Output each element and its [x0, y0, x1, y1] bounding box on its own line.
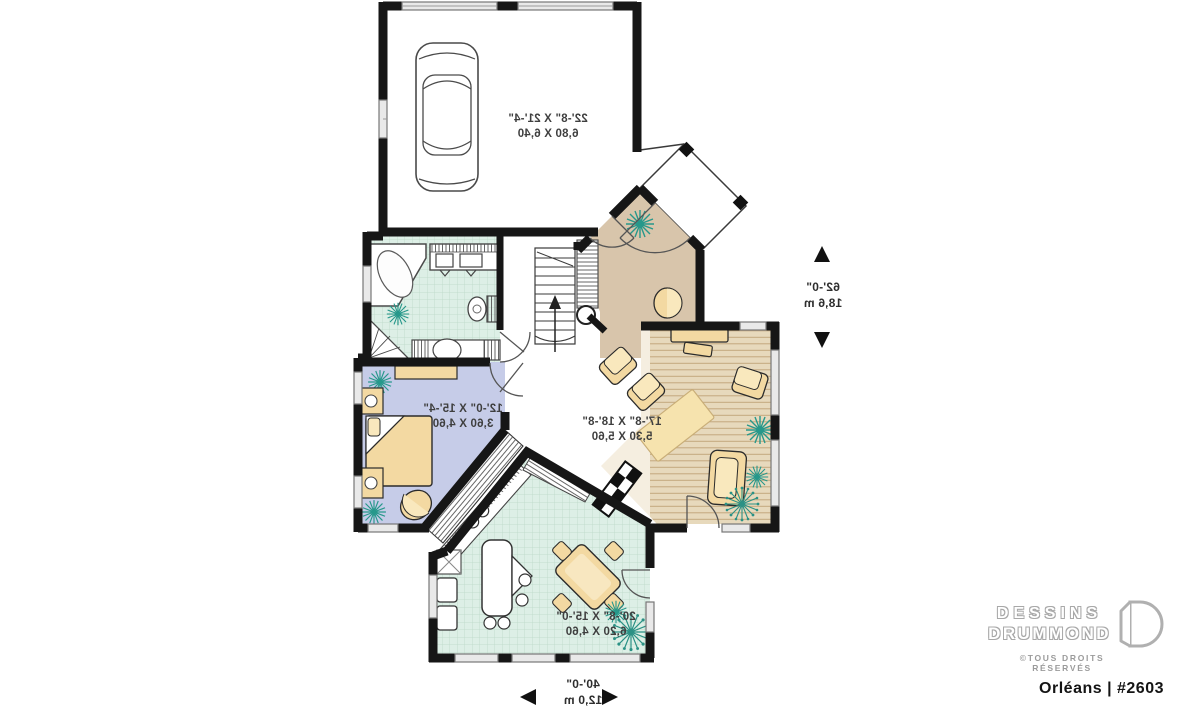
living-room-dimensions-label: 17'-8" X 18'-8" 5,30 X 5,60	[582, 415, 661, 445]
overall-width-label: 40'-0" 12,0 m	[564, 677, 603, 709]
bedroom-dim-imperial: 12'-0" X 15'-4"	[423, 402, 502, 417]
depth-imperial: 62'-0"	[804, 280, 843, 296]
brand-logo: DESSINS DRUMMOND ©TOUS DROITS RÉSERVÉS O…	[988, 597, 1164, 698]
plant-icon	[362, 500, 386, 524]
dining-table	[551, 540, 624, 613]
width-imperial: 40'-0"	[564, 677, 603, 693]
plan-model-number: Orléans | #2603	[988, 680, 1164, 698]
bedroom-dim-metric: 3,60 X 4,60	[423, 417, 502, 432]
kitchen-dim-imperial: 20'-8" X 15'-0"	[556, 610, 635, 625]
plant-icon	[746, 466, 768, 488]
foyer-chair	[654, 288, 682, 318]
brand-name: DESSINS DRUMMOND	[988, 605, 1111, 644]
floor-plan-canvas: 22'-8" X 21'-4" 6,80 X 6,40 17'-8" X 18'…	[0, 0, 1200, 711]
plant-icon	[746, 416, 774, 444]
garage-car	[416, 43, 478, 191]
width-metric: 12,0 m	[564, 693, 603, 709]
refrigerator	[437, 606, 457, 630]
range	[437, 578, 457, 602]
width-arrow-right	[602, 689, 618, 705]
depth-arrow-down	[814, 332, 830, 348]
kitchen-dimensions-label: 20'-8" X 15'-0" 6,20 X 4,60	[556, 610, 635, 640]
garage-dim-imperial: 22'-8" X 21'-4"	[508, 112, 587, 127]
garage-dimensions-label: 22'-8" X 21'-4" 6,80 X 6,40	[508, 112, 587, 142]
living-dim-metric: 5,30 X 5,60	[582, 430, 661, 445]
brand-name-line2: DRUMMOND	[988, 624, 1111, 644]
dresser	[395, 366, 457, 379]
brand-name-line1: DESSINS	[988, 605, 1111, 623]
bedroom-dimensions-label: 12'-0" X 15'-4" 3,60 X 4,60	[423, 402, 502, 432]
drummond-d-icon	[1118, 597, 1164, 651]
overall-depth-label: 62'-0" 18,6 m	[804, 280, 843, 312]
depth-metric: 18,6 m	[804, 296, 843, 312]
kitchen-dim-metric: 6,20 X 4,60	[556, 625, 635, 640]
depth-arrow-up	[814, 246, 830, 262]
hall-closet	[577, 240, 598, 324]
width-arrow-left	[520, 689, 536, 705]
staircase	[535, 248, 575, 352]
copyright-text: ©TOUS DROITS RÉSERVÉS	[988, 653, 1136, 673]
plant-icon	[387, 303, 409, 325]
living-dim-imperial: 17'-8" X 18'-8"	[582, 415, 661, 430]
garage-dim-metric: 6,80 X 6,40	[508, 127, 587, 142]
sofa-console	[671, 329, 728, 342]
